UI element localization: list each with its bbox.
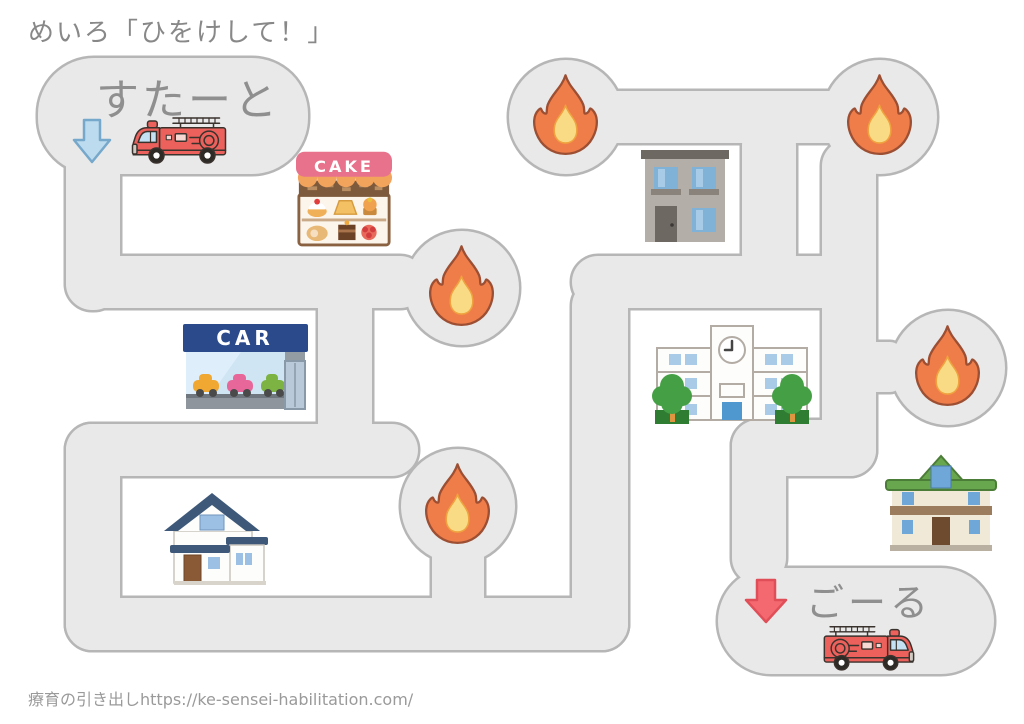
blue-roof-house-icon <box>164 493 268 585</box>
start-label: すたーと <box>96 66 280 128</box>
car-sign-text: CAR <box>216 326 274 350</box>
apartment-building-icon <box>641 150 729 242</box>
page-title: めいろ「ひをけして！」 <box>28 12 335 49</box>
cake-shop-icon: CAKE <box>296 152 392 245</box>
maze-worksheet-page: CAKE CAR <box>0 0 1024 724</box>
footer-credit: 療育の引き出しhttps://ke-sensei-habilitation.co… <box>28 686 413 710</box>
goal-label: ごーる <box>806 572 932 627</box>
green-roof-house-icon <box>886 456 996 551</box>
car-dealer-icon: CAR <box>183 324 308 409</box>
cake-sign-text: CAKE <box>314 157 374 176</box>
school-icon <box>652 326 812 424</box>
